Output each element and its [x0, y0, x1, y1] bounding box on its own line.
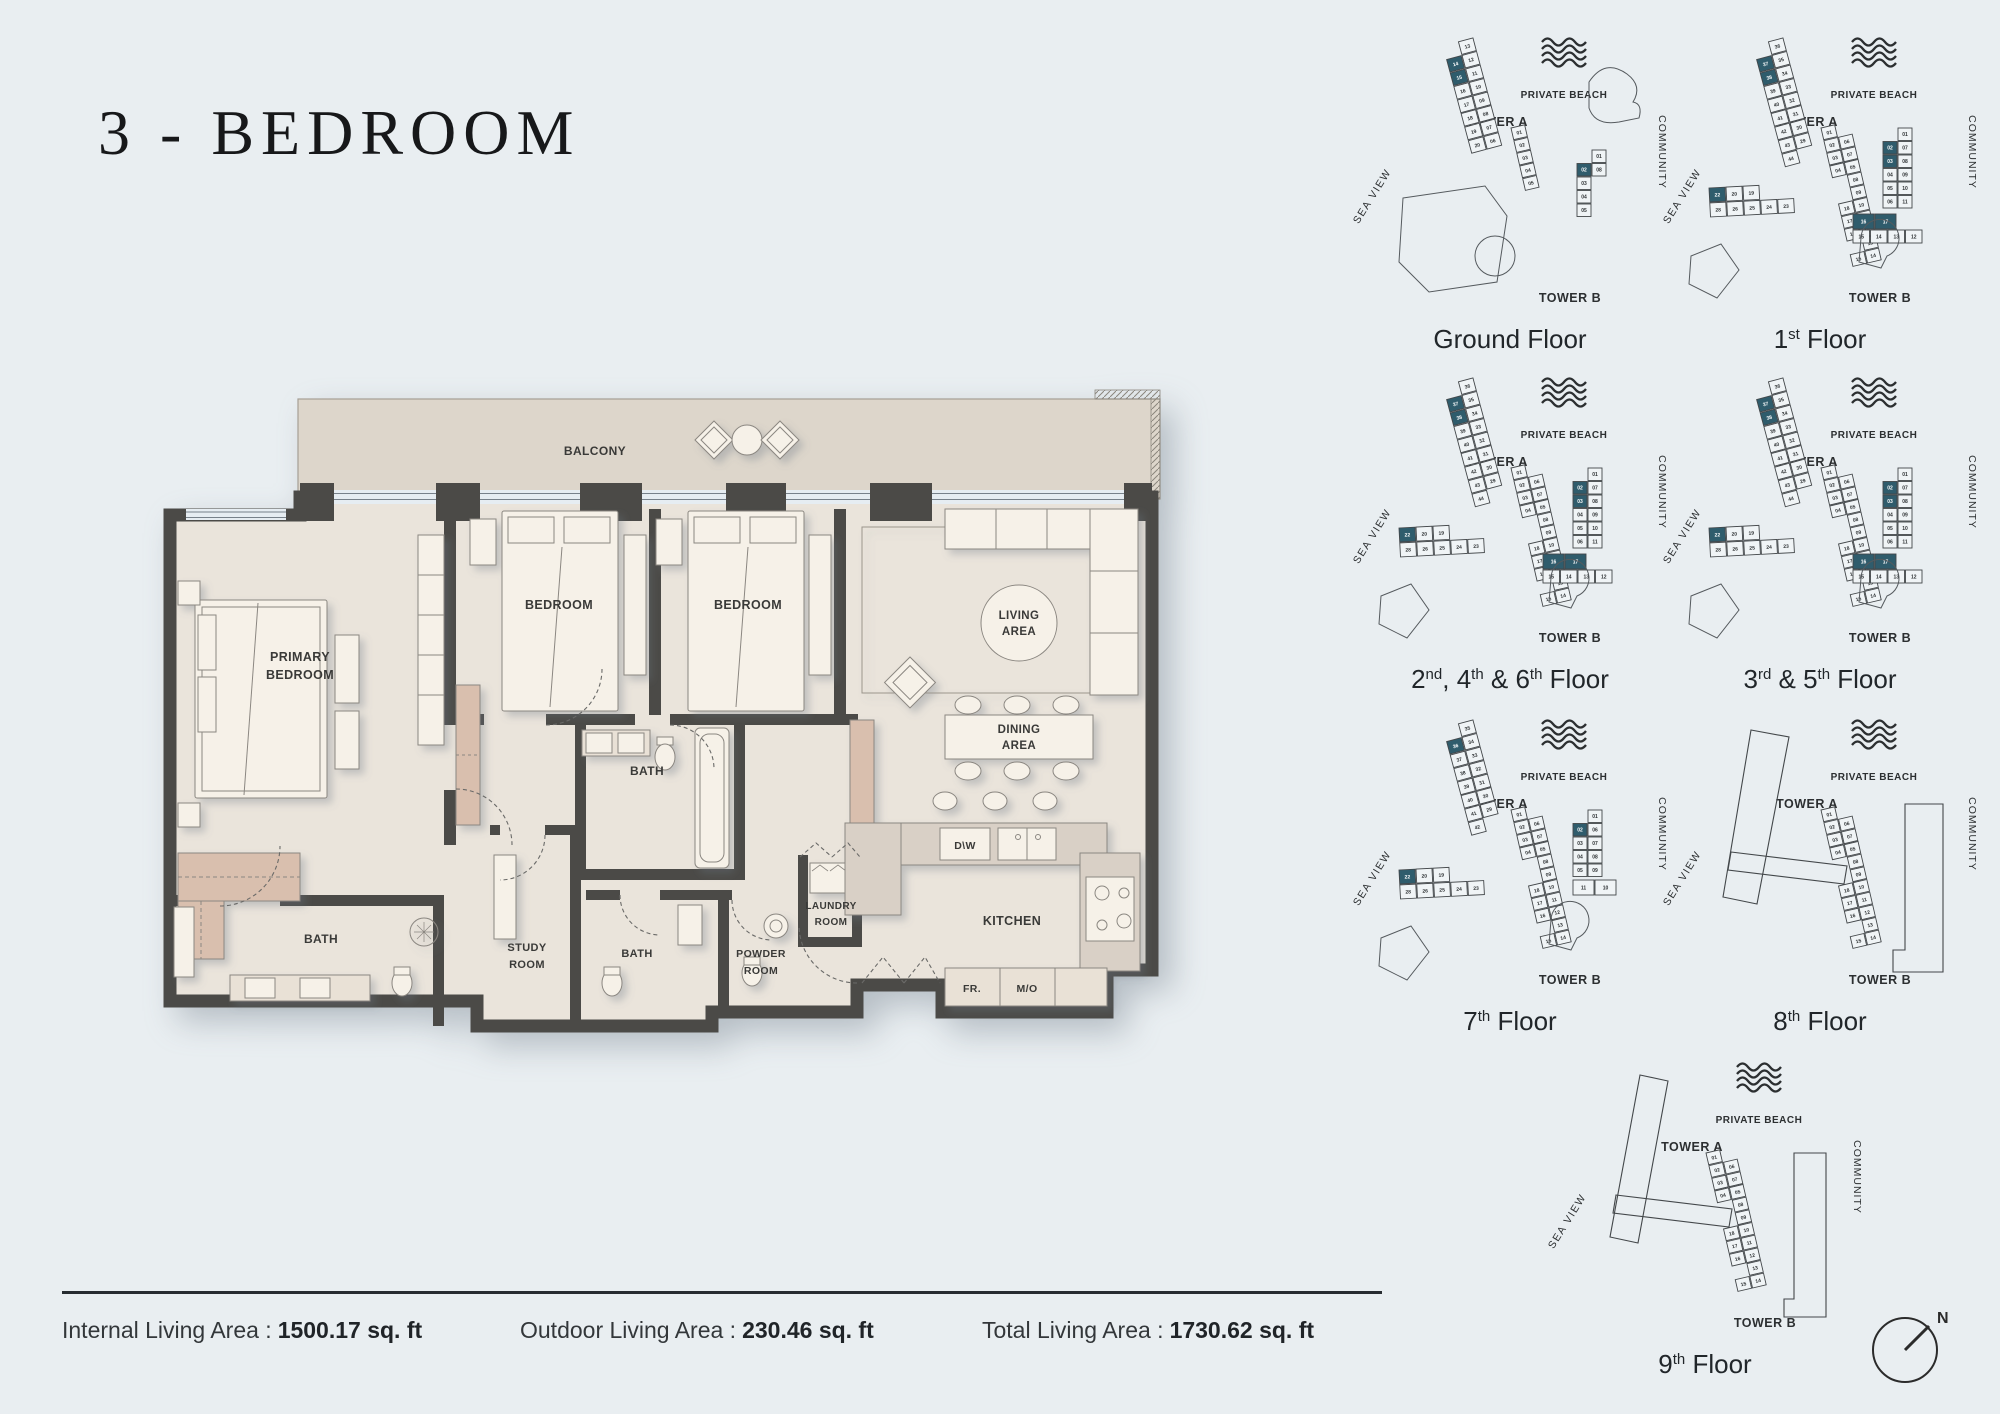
svg-text:ROOM: ROOM	[815, 917, 848, 928]
svg-text:26: 26	[1422, 888, 1428, 894]
svg-text:24: 24	[1456, 545, 1462, 551]
microwave-label: M/O	[1016, 983, 1037, 995]
svg-text:20: 20	[1421, 531, 1427, 537]
svg-text:SEA VIEW: SEA VIEW	[1546, 1192, 1589, 1251]
brochure-page: { "page":{"bg":"#e9eef1","wall":"#4b4a47…	[0, 0, 2000, 1414]
keyplan-7th-floor: PRIVATE BEACHTOWER ATOWER BSEA VIEWCOMMU…	[1345, 712, 1675, 1052]
svg-text:PRIVATE BEACH: PRIVATE BEACH	[1521, 430, 1608, 441]
keyplan-map: PRIVATE BEACHTOWER ATOWER BSEA VIEWCOMMU…	[1540, 1055, 1870, 1355]
living-label: LIVING	[999, 610, 1040, 622]
svg-text:COMMUNITY: COMMUNITY	[1966, 115, 1978, 189]
svg-text:28: 28	[1405, 547, 1411, 553]
svg-text:09: 09	[1902, 173, 1908, 179]
svg-text:09: 09	[1592, 513, 1598, 519]
svg-text:SEA VIEW: SEA VIEW	[1661, 167, 1704, 226]
dining-table	[945, 715, 1093, 759]
svg-text:23: 23	[1473, 886, 1479, 892]
keyplan-9th-floor: PRIVATE BEACHTOWER ATOWER BSEA VIEWCOMMU…	[1540, 1055, 1870, 1395]
svg-text:07: 07	[1902, 486, 1908, 492]
svg-text:22: 22	[1714, 532, 1720, 538]
svg-text:11: 11	[1902, 540, 1908, 546]
svg-text:AREA: AREA	[1002, 740, 1036, 752]
svg-text:20: 20	[1421, 873, 1427, 879]
svg-text:16: 16	[1551, 559, 1557, 565]
svg-text:23: 23	[1783, 204, 1789, 210]
keyplan-2nd-4th-6th-floor: PRIVATE BEACHTOWER ATOWER BSEA VIEWCOMMU…	[1345, 370, 1675, 710]
svg-text:22: 22	[1404, 874, 1410, 880]
sofa	[945, 509, 1097, 549]
svg-text:ROOM: ROOM	[509, 959, 545, 971]
svg-text:07: 07	[1592, 841, 1598, 847]
total-living-area-label: Total Living Area :	[982, 1317, 1164, 1343]
svg-text:09: 09	[1902, 513, 1908, 519]
svg-text:06: 06	[1577, 540, 1583, 546]
keyplan-caption: 1st Floor	[1774, 324, 1867, 355]
svg-text:08: 08	[1596, 168, 1602, 174]
svg-text:19: 19	[1438, 873, 1444, 879]
svg-text:SEA VIEW: SEA VIEW	[1351, 167, 1394, 226]
keyplan-3rd-5th-floor: PRIVATE BEACHTOWER ATOWER BSEA VIEWCOMMU…	[1655, 370, 1985, 710]
svg-text:TOWER B: TOWER B	[1849, 973, 1911, 987]
svg-text:04: 04	[1577, 855, 1583, 861]
svg-text:TOWER B: TOWER B	[1849, 631, 1911, 645]
svg-text:06: 06	[1592, 828, 1598, 834]
svg-text:09: 09	[1592, 868, 1598, 874]
waves-icon	[1542, 379, 1586, 407]
floor-plan: BALCONY	[150, 385, 1190, 1085]
waves-icon	[1542, 39, 1586, 67]
svg-text:10: 10	[1902, 186, 1908, 192]
svg-text:11: 11	[1592, 540, 1598, 546]
keyplan-caption: 9th Floor	[1658, 1349, 1751, 1380]
svg-text:24: 24	[1766, 545, 1772, 551]
svg-text:10: 10	[1603, 885, 1609, 891]
svg-text:02: 02	[1887, 486, 1893, 492]
svg-text:12: 12	[1601, 574, 1607, 580]
svg-text:16: 16	[1861, 219, 1867, 225]
svg-text:11: 11	[1581, 885, 1587, 891]
keyplan-map: PRIVATE BEACHTOWER ATOWER BSEA VIEWCOMMU…	[1655, 370, 1985, 670]
laundry-label: LAUNDRY	[805, 901, 856, 912]
waves-icon	[1542, 721, 1586, 749]
svg-text:SEA VIEW: SEA VIEW	[1661, 507, 1704, 566]
svg-text:TOWER B: TOWER B	[1539, 291, 1601, 305]
svg-text:01: 01	[1902, 472, 1908, 478]
svg-text:02: 02	[1577, 828, 1583, 834]
total-living-area: Total Living Area :1730.62 sq. ft	[982, 1317, 1314, 1344]
svg-text:05: 05	[1887, 186, 1893, 192]
fridge-label: FR.	[963, 983, 981, 995]
svg-text:03: 03	[1577, 841, 1583, 847]
keyplan-caption: 3rd & 5th Floor	[1743, 664, 1896, 695]
svg-text:25: 25	[1439, 888, 1445, 894]
svg-text:14: 14	[1566, 574, 1572, 580]
svg-text:03: 03	[1887, 159, 1893, 165]
svg-text:26: 26	[1732, 206, 1738, 212]
svg-text:08: 08	[1902, 159, 1908, 165]
wardrobe	[418, 535, 444, 745]
svg-text:TOWER B: TOWER B	[1539, 631, 1601, 645]
svg-text:01: 01	[1596, 154, 1602, 160]
keyplan-caption: 8th Floor	[1773, 1006, 1866, 1037]
svg-text:12: 12	[1911, 574, 1917, 580]
keyplan-8th-floor: PRIVATE BEACHTOWER ATOWER BSEA VIEWCOMMU…	[1655, 712, 1985, 1052]
keyplan-1st-floor: PRIVATE BEACHTOWER ATOWER BSEA VIEWCOMMU…	[1655, 30, 1985, 370]
svg-text:10: 10	[1902, 526, 1908, 532]
svg-text:05: 05	[1577, 868, 1583, 874]
keyplan-map: PRIVATE BEACHTOWER ATOWER BSEA VIEWCOMMU…	[1345, 30, 1675, 330]
keyplan-map: PRIVATE BEACHTOWER ATOWER BSEA VIEWCOMMU…	[1345, 712, 1675, 1012]
svg-text:01: 01	[1592, 814, 1598, 820]
svg-text:TOWER B: TOWER B	[1849, 291, 1911, 305]
waves-icon	[1852, 379, 1896, 407]
svg-text:23: 23	[1783, 544, 1789, 550]
svg-text:04: 04	[1577, 513, 1583, 519]
primary-bedroom-label: PRIMARY	[270, 650, 330, 664]
svg-text:25: 25	[1749, 546, 1755, 552]
svg-text:COMMUNITY: COMMUNITY	[1966, 797, 1978, 871]
keyplan-caption: 7th Floor	[1463, 1006, 1556, 1037]
svg-text:19: 19	[1748, 191, 1754, 197]
svg-text:24: 24	[1766, 205, 1772, 211]
living-area-plate	[981, 585, 1057, 661]
svg-text:PRIVATE BEACH: PRIVATE BEACH	[1831, 90, 1918, 101]
balcony-furniture	[695, 421, 799, 459]
powder-label: POWDER	[736, 948, 786, 960]
svg-text:TOWER B: TOWER B	[1734, 1316, 1796, 1330]
waves-icon	[1852, 39, 1896, 67]
waves-icon	[1852, 721, 1896, 749]
svg-text:03: 03	[1887, 499, 1893, 505]
bath-label: BATH	[630, 764, 664, 778]
svg-text:02: 02	[1577, 486, 1583, 492]
svg-text:PRIVATE BEACH: PRIVATE BEACH	[1521, 90, 1608, 101]
internal-living-area-label: Internal Living Area :	[62, 1317, 272, 1343]
svg-text:07: 07	[1902, 146, 1908, 152]
svg-text:11: 11	[1902, 200, 1908, 206]
svg-text:19: 19	[1748, 531, 1754, 537]
keyplan-ground-floor: PRIVATE BEACHTOWER ATOWER BSEA VIEWCOMMU…	[1345, 30, 1675, 370]
keyplan-map: PRIVATE BEACHTOWER ATOWER BSEA VIEWCOMMU…	[1345, 370, 1675, 670]
svg-text:01: 01	[1592, 472, 1598, 478]
svg-text:26: 26	[1422, 546, 1428, 552]
svg-text:SEA VIEW: SEA VIEW	[1351, 507, 1394, 566]
svg-text:02: 02	[1887, 146, 1893, 152]
svg-text:05: 05	[1577, 526, 1583, 532]
svg-text:22: 22	[1714, 192, 1720, 198]
svg-text:25: 25	[1439, 546, 1445, 552]
svg-text:20: 20	[1731, 191, 1737, 197]
svg-text:14: 14	[1876, 234, 1882, 240]
balcony: BALCONY	[298, 390, 1160, 499]
svg-text:28: 28	[1715, 547, 1721, 553]
svg-text:03: 03	[1581, 181, 1587, 187]
dishwasher-label: D\W	[954, 840, 976, 852]
sofa	[1090, 509, 1138, 695]
svg-text:04: 04	[1887, 173, 1893, 179]
svg-text:23: 23	[1473, 544, 1479, 550]
desk	[494, 855, 516, 939]
svg-text:01: 01	[1902, 132, 1908, 138]
bath-label: BATH	[304, 932, 338, 946]
svg-text:26: 26	[1732, 546, 1738, 552]
compass-icon: N	[1855, 1295, 1975, 1395]
keyplan-caption: 2nd, 4th & 6th Floor	[1411, 664, 1609, 695]
svg-text:28: 28	[1715, 207, 1721, 213]
bedroom2-label: BEDROOM	[525, 598, 593, 612]
keyplan-map: PRIVATE BEACHTOWER ATOWER BSEA VIEWCOMMU…	[1655, 30, 1985, 330]
svg-text:04: 04	[1581, 195, 1587, 201]
svg-text:PRIVATE BEACH: PRIVATE BEACH	[1521, 772, 1608, 783]
svg-text:14: 14	[1876, 574, 1882, 580]
svg-text:08: 08	[1592, 855, 1598, 861]
total-living-area-value: 1730.62 sq. ft	[1170, 1317, 1314, 1343]
svg-text:PRIVATE BEACH: PRIVATE BEACH	[1831, 772, 1918, 783]
svg-text:BEDROOM: BEDROOM	[266, 668, 334, 682]
internal-living-area-value: 1500.17 sq. ft	[278, 1317, 422, 1343]
svg-text:03: 03	[1577, 499, 1583, 505]
study-label: STUDY	[507, 942, 547, 954]
svg-text:ROOM: ROOM	[744, 965, 778, 977]
hatch-edge-right	[1151, 399, 1160, 499]
svg-text:AREA: AREA	[1002, 626, 1036, 638]
svg-text:PRIVATE BEACH: PRIVATE BEACH	[1716, 1115, 1803, 1126]
outdoor-living-area: Outdoor Living Area :230.46 sq. ft	[520, 1317, 874, 1344]
svg-text:COMMUNITY: COMMUNITY	[1966, 455, 1978, 529]
svg-text:22: 22	[1404, 532, 1410, 538]
kitchen-label: KITCHEN	[983, 914, 1041, 928]
svg-text:08: 08	[1592, 499, 1598, 505]
summary-divider	[62, 1291, 1382, 1294]
svg-text:07: 07	[1592, 486, 1598, 492]
svg-text:04: 04	[1887, 513, 1893, 519]
bath-label: BATH	[621, 948, 652, 960]
bedroom3-label: BEDROOM	[714, 598, 782, 612]
svg-text:02: 02	[1581, 168, 1587, 174]
svg-text:06: 06	[1887, 200, 1893, 206]
svg-text:COMMUNITY: COMMUNITY	[1851, 1140, 1863, 1214]
hatch-edge-top	[1095, 390, 1160, 399]
svg-text:16: 16	[1861, 559, 1867, 565]
svg-text:05: 05	[1887, 526, 1893, 532]
internal-living-area: Internal Living Area :1500.17 sq. ft	[62, 1317, 422, 1344]
sofa	[178, 853, 300, 901]
svg-text:20: 20	[1731, 531, 1737, 537]
keyplan-map: PRIVATE BEACHTOWER ATOWER BSEA VIEWCOMMU…	[1655, 712, 1985, 1012]
page-title: 3 - BEDROOM	[98, 96, 580, 170]
svg-text:28: 28	[1405, 889, 1411, 895]
svg-text:SEA VIEW: SEA VIEW	[1661, 849, 1704, 908]
svg-text:10: 10	[1592, 526, 1598, 532]
outdoor-living-area-label: Outdoor Living Area :	[520, 1317, 736, 1343]
svg-text:25: 25	[1749, 206, 1755, 212]
svg-text:TOWER B: TOWER B	[1539, 973, 1601, 987]
svg-text:SEA VIEW: SEA VIEW	[1351, 849, 1394, 908]
svg-text:19: 19	[1438, 531, 1444, 537]
outdoor-living-area-value: 230.46 sq. ft	[742, 1317, 874, 1343]
keyplan-caption: Ground Floor	[1433, 324, 1586, 355]
dining-label: DINING	[998, 724, 1041, 736]
svg-text:PRIVATE BEACH: PRIVATE BEACH	[1831, 430, 1918, 441]
svg-text:08: 08	[1902, 499, 1908, 505]
svg-text:12: 12	[1911, 234, 1917, 240]
waves-icon	[1737, 1064, 1781, 1092]
svg-text:06: 06	[1887, 540, 1893, 546]
svg-text:24: 24	[1456, 887, 1462, 893]
svg-text:05: 05	[1581, 208, 1587, 214]
compass-north-label: N	[1937, 1310, 1949, 1327]
balcony-label: BALCONY	[564, 444, 626, 458]
